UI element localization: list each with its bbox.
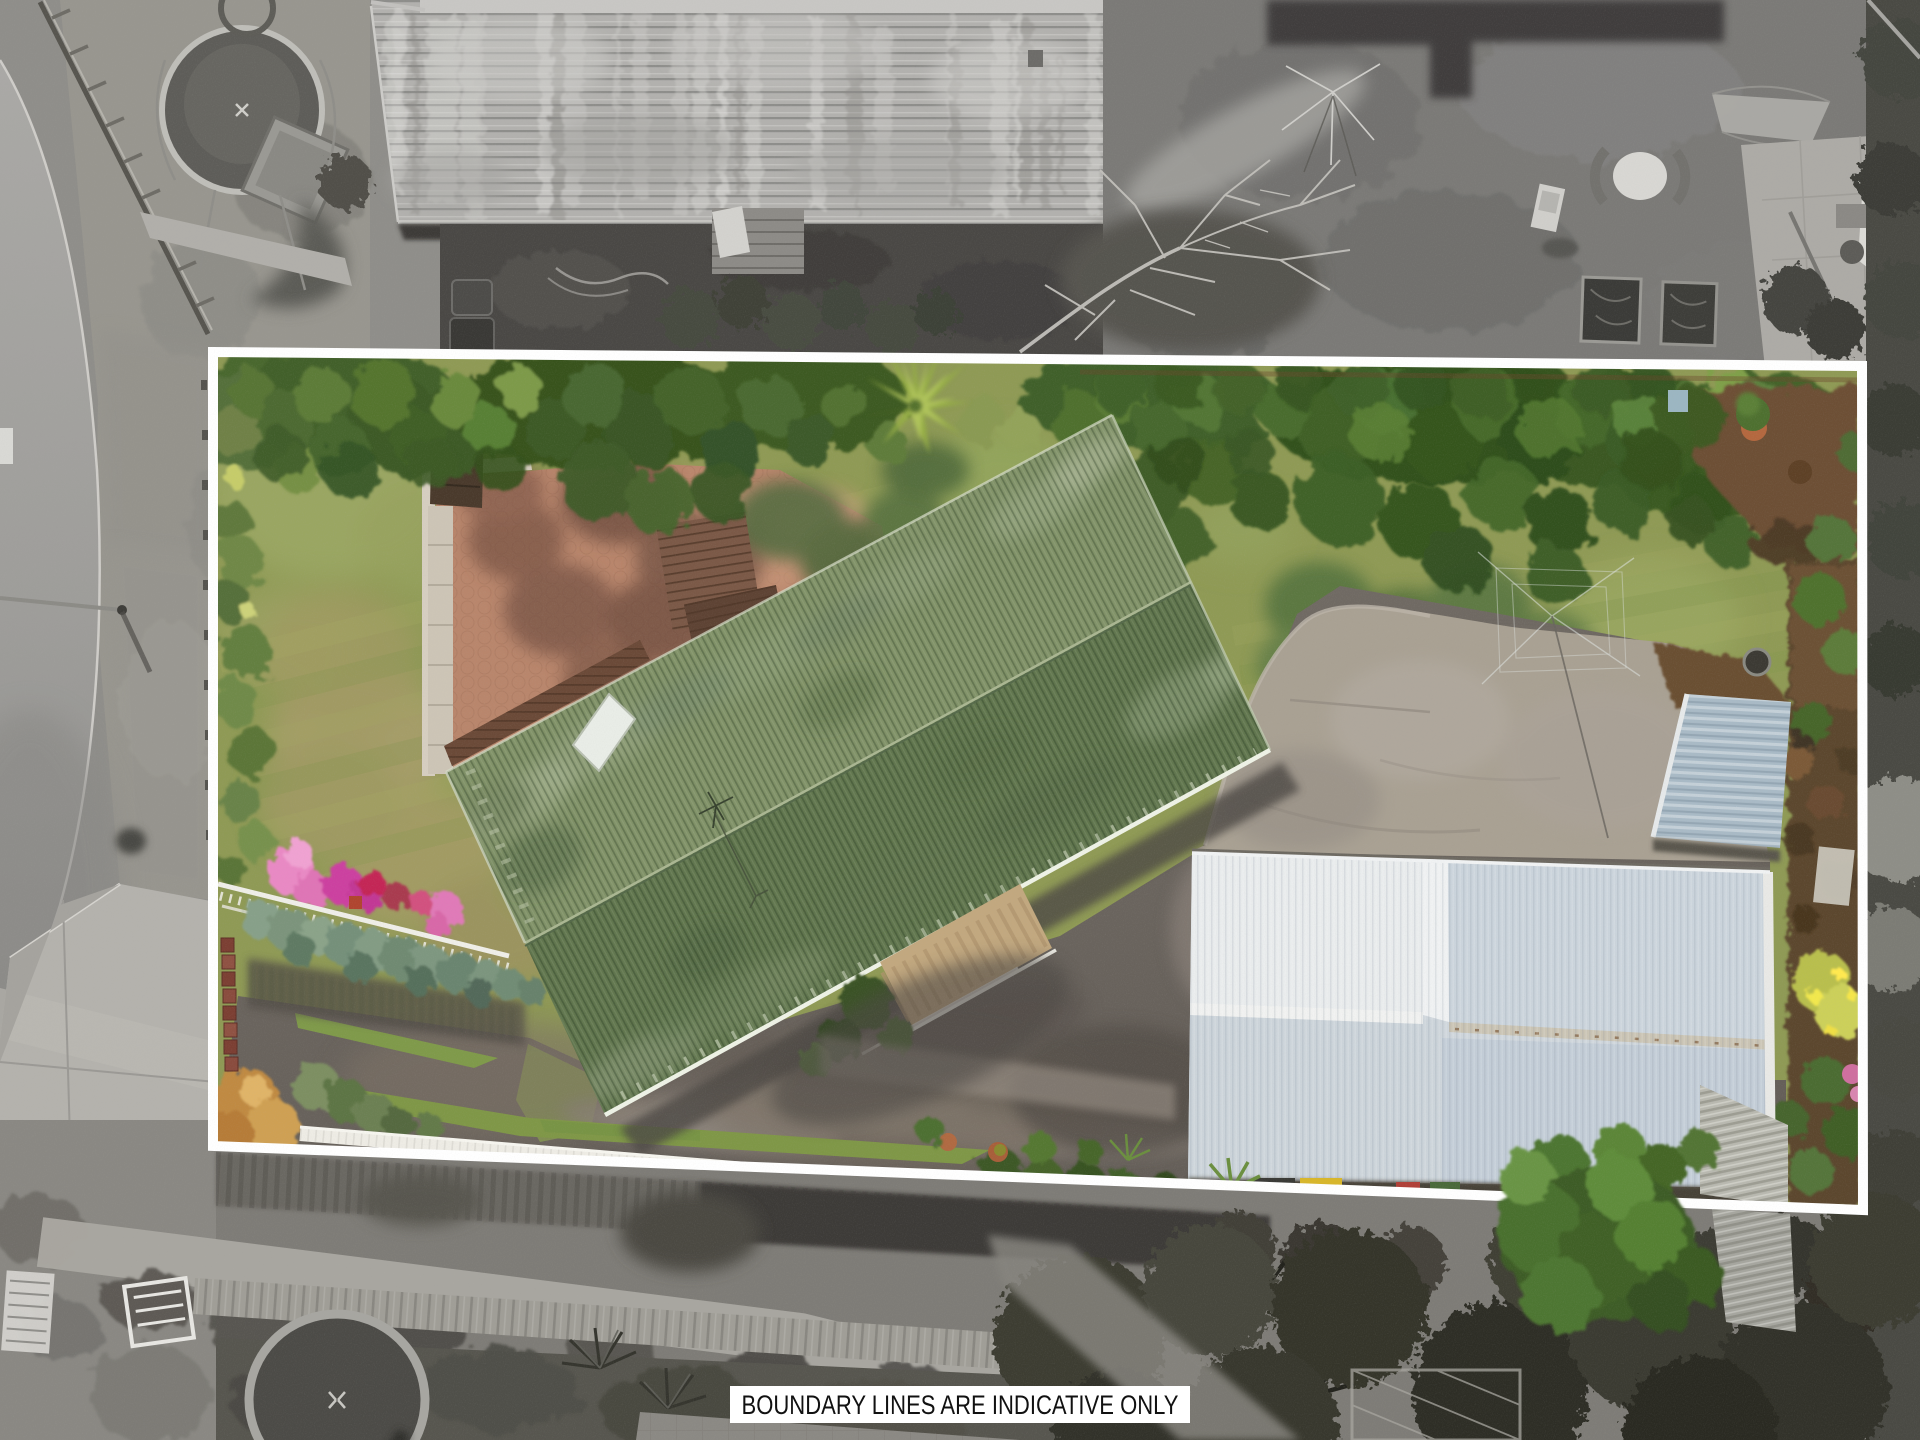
svg-text:BOUNDARY LINES ARE INDICATIVE: BOUNDARY LINES ARE INDICATIVE ONLY [742, 1390, 1179, 1420]
